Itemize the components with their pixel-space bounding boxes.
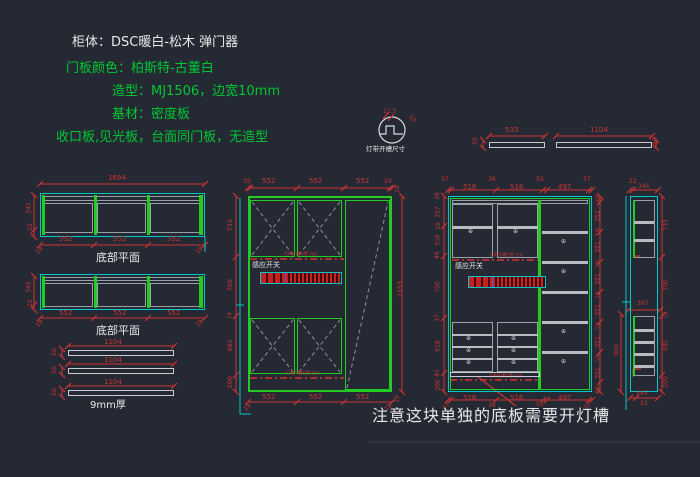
dim: 200	[227, 376, 234, 388]
dim: 345	[636, 391, 647, 397]
dim: 516	[510, 395, 523, 402]
dim: 316	[436, 234, 442, 245]
dim: 516	[463, 184, 476, 191]
dim-367: 367	[637, 301, 648, 307]
shelf	[452, 346, 493, 348]
board-1104	[68, 390, 174, 396]
plan2-divider	[199, 276, 203, 308]
hole-marker-icon: ⊕	[511, 360, 516, 366]
dim: 681	[664, 339, 670, 350]
midcab-door	[297, 318, 342, 374]
dim-552: 552	[167, 310, 180, 317]
shelf	[634, 353, 654, 356]
dim: 38	[435, 192, 441, 200]
sensor-switch-label: 感应开关	[252, 262, 280, 269]
led-note: 灯带开槽位置 白光	[284, 252, 317, 256]
shelf	[452, 334, 493, 336]
plan2-topband	[43, 277, 202, 281]
shelf	[542, 351, 588, 354]
dim-1104: 1104	[104, 357, 122, 364]
dim: 19	[665, 311, 670, 317]
plan1-panel	[97, 203, 146, 233]
dim: 618	[436, 340, 442, 351]
dim: 46	[435, 251, 441, 259]
hole-marker-icon: ⊕	[511, 348, 516, 354]
dim: 200	[664, 376, 670, 387]
plan2-panel	[44, 283, 93, 307]
dim: 18	[436, 222, 442, 230]
plan1-divider	[199, 195, 203, 235]
dim-1104: 1104	[104, 379, 122, 386]
boards-title: 9mm厚	[90, 401, 126, 411]
spec-substrate: 基材：密度板	[112, 108, 190, 121]
shelf	[542, 231, 588, 234]
dim: 345	[638, 184, 649, 190]
dim: 200	[436, 379, 442, 390]
dim-50-a: 50	[473, 137, 479, 145]
led-strip	[260, 272, 342, 284]
dim: 552	[309, 178, 322, 185]
hole-marker-icon: ⊕	[466, 348, 471, 354]
dim-552: 552	[113, 236, 126, 243]
sideview-edge	[633, 200, 635, 258]
hole-marker-icon: ⊕	[513, 229, 518, 235]
hole-marker-icon: ⊕	[466, 336, 471, 342]
dim: 497	[558, 184, 571, 191]
hole-marker-icon: ⊕	[561, 329, 566, 335]
board-1104	[68, 368, 174, 374]
groove-width-dim: 11.5	[383, 109, 396, 115]
hole-marker-icon: ⊕	[561, 269, 566, 275]
dim: 352	[596, 210, 602, 221]
dim: 18	[596, 260, 602, 268]
dim-552: 552	[59, 310, 72, 317]
dim: 700	[436, 281, 442, 292]
dim: 22	[629, 179, 637, 185]
board-533	[489, 142, 545, 148]
rightcab-divider	[538, 200, 541, 390]
dim-50: 50	[52, 366, 58, 374]
spec-style: 造型：MJ1506，边宽10mm	[112, 85, 280, 98]
dim: 351	[596, 241, 602, 252]
plan1-panel	[44, 203, 93, 233]
midcab-door	[297, 200, 342, 257]
dim: 552	[309, 394, 322, 401]
midcab-door	[250, 200, 295, 257]
dim-345-p2: 345	[27, 281, 33, 292]
dim: 351	[596, 304, 602, 315]
plan2-divider	[94, 276, 97, 308]
dim-50: 50	[52, 388, 58, 396]
dim: 497	[558, 395, 571, 402]
led-note: 灯带开槽位置 白光	[286, 371, 319, 375]
sensor-switch-label: 感应开关	[455, 263, 483, 270]
shelf	[542, 321, 588, 324]
plan1-panel	[150, 203, 201, 233]
dim: 733	[664, 219, 670, 230]
spec-trim: 收口板,见光板，台面同门板，无造型	[56, 131, 268, 144]
separate-bottom-board	[450, 372, 540, 377]
spec-cabinet: 柜体：DSC暖白-松木 弹门器	[72, 36, 238, 49]
shelf	[542, 291, 588, 294]
led-note: 灯带开槽位置 白光	[490, 253, 523, 257]
dim: 19	[395, 395, 401, 403]
shelf	[634, 329, 654, 332]
dim: 18	[596, 354, 602, 362]
dim: 700	[664, 279, 670, 290]
dim: 516	[463, 395, 476, 402]
shelf	[634, 239, 654, 242]
dim-1104-top: 1104	[590, 127, 608, 134]
dim-22-p2: 22	[28, 299, 34, 307]
dim: 351	[596, 367, 602, 378]
shelf	[452, 358, 493, 360]
plan1-divider	[42, 195, 45, 235]
dim: 351	[596, 273, 602, 284]
board-1104-top	[556, 142, 652, 148]
dim-2333: 2333	[397, 281, 404, 298]
shelf	[634, 365, 654, 368]
cad-canvas: 柜体：DSC暖白-松木 弹门器 门板颜色：柏斯特-古董白 造型：MJ1506，边…	[0, 0, 700, 477]
dim: 552	[262, 394, 275, 401]
shelf	[634, 341, 654, 344]
hole-marker-icon: ⊕	[511, 336, 516, 342]
hole-marker-icon: ⊕	[561, 239, 566, 245]
shelf	[497, 358, 538, 360]
shelf	[497, 334, 538, 336]
hole-marker-icon: ⊕	[466, 360, 471, 366]
dim: 516	[510, 184, 523, 191]
hole-marker-icon: ⊕	[468, 229, 473, 235]
spec-door-color: 门板颜色：柏斯特-古董白	[66, 62, 214, 75]
hole-marker-icon: ⊕	[561, 359, 566, 365]
midcab-door	[250, 318, 295, 374]
midcab-tall-door	[345, 200, 390, 390]
dim: 733	[227, 219, 234, 231]
dim-50-b: 50	[653, 137, 659, 145]
shelf	[542, 261, 588, 264]
shelf	[497, 346, 538, 348]
dim: 19	[395, 185, 401, 193]
dim-533: 533	[505, 127, 518, 134]
dim: 681	[227, 339, 234, 351]
dim: 22	[640, 401, 648, 407]
dim: 68	[596, 194, 602, 202]
dim: 18	[596, 322, 602, 330]
dim: 552	[356, 394, 369, 401]
plan2-divider	[147, 276, 150, 308]
shelf	[634, 221, 654, 224]
dim-50: 50	[52, 348, 58, 356]
dim: 18	[596, 291, 602, 299]
dim-900: 900	[615, 344, 621, 355]
dim-1694: 1694	[108, 175, 126, 182]
dim-552: 552	[59, 236, 72, 243]
dim: 45	[435, 369, 441, 377]
plan2-title: 底部平面	[96, 325, 140, 336]
dim: 552	[262, 178, 275, 185]
dim: 19	[243, 179, 251, 185]
groove-detail-label: 灯带开槽尺寸	[366, 146, 405, 153]
dim-345-p1: 345	[27, 202, 33, 213]
dim: 37	[435, 314, 441, 322]
dim: 317	[436, 206, 442, 217]
dim: 552	[356, 178, 369, 185]
sideview-upper-box	[633, 200, 655, 258]
warning-note: 注意这块单独的底板需要开灯槽	[372, 408, 610, 424]
plan2-panel	[150, 283, 201, 307]
dim: 37	[441, 177, 449, 183]
plan1-topband	[43, 196, 202, 201]
dim-552: 552	[167, 236, 180, 243]
dim-552: 552	[113, 310, 126, 317]
dim-22-p1: 22	[28, 223, 34, 231]
plan1-divider	[94, 195, 97, 235]
dim: 19	[384, 179, 392, 185]
dim-1104: 1104	[104, 339, 122, 346]
dim: 68	[596, 386, 602, 394]
dim: 700	[227, 279, 234, 291]
led-strip	[468, 276, 546, 288]
dim: 18	[596, 228, 602, 236]
plan2-divider	[42, 276, 45, 308]
dim: 55	[536, 177, 544, 183]
dim: 19	[229, 312, 234, 318]
plan1-divider	[147, 195, 150, 235]
dim: 36	[488, 177, 496, 183]
plan1-title: 底部平面	[96, 252, 140, 263]
plan2-panel	[97, 283, 146, 307]
dim: 37	[583, 177, 591, 183]
dim: 351	[596, 336, 602, 347]
